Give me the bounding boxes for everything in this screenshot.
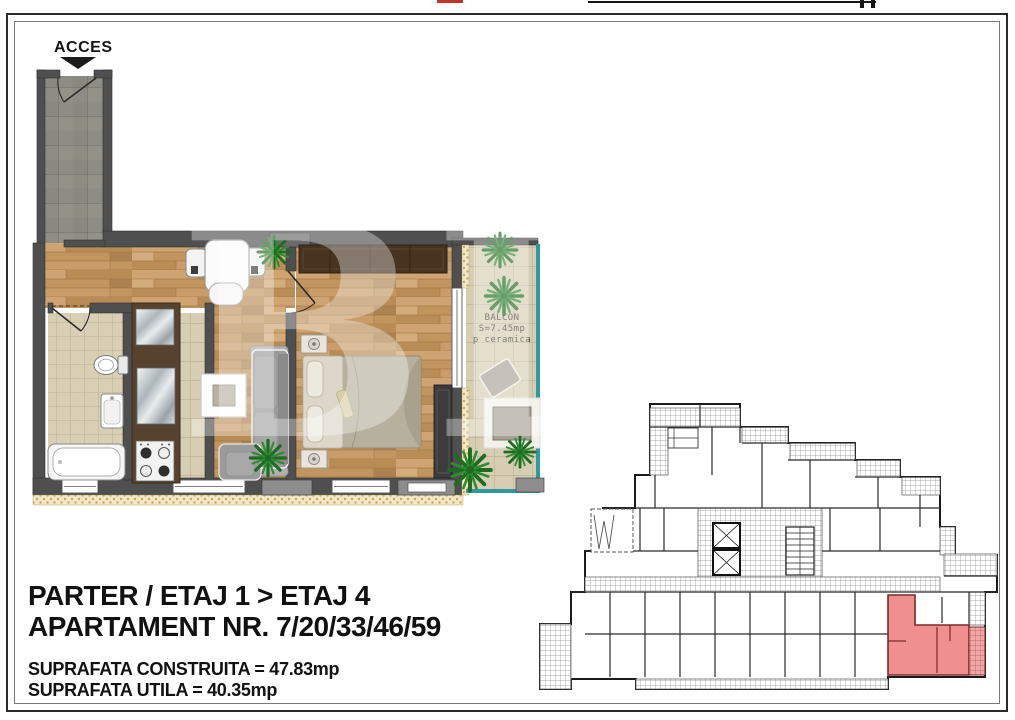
apartment-number: APARTAMENT NR. 7/20/33/46/59 — [28, 611, 441, 642]
scan-artifact — [871, 0, 875, 8]
access-arrow-icon — [60, 57, 96, 69]
usable-area: SUPRAFATA UTILA = 40.35mp — [28, 680, 441, 701]
apartment-info: PARTER / ETAJ 1 > ETAJ 4 APARTAMENT NR. … — [28, 580, 441, 701]
floor-range: PARTER / ETAJ 1 > ETAJ 4 — [28, 580, 441, 611]
built-area: SUPRAFATA CONSTRUITA = 47.83mp — [28, 659, 441, 680]
access-label: ACCES — [54, 39, 113, 57]
scan-artifact — [437, 0, 463, 3]
scan-artifact — [860, 0, 864, 8]
floor-plan-sheet: BALCON S=7.45mp p ceramica BL ACCES PART… — [0, 0, 1015, 720]
scan-artifact — [588, 1, 876, 3]
